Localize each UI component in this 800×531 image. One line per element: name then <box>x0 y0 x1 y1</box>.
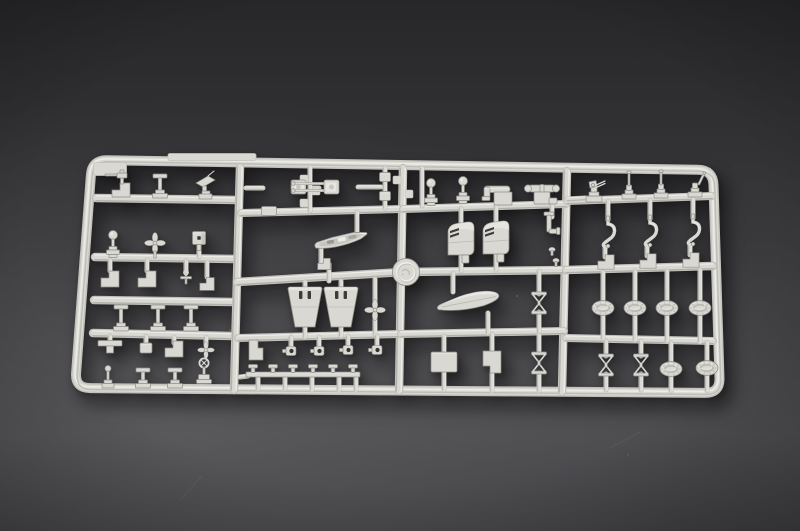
part-block <box>262 207 277 216</box>
part-block <box>380 192 391 201</box>
sprue-scene <box>0 0 800 531</box>
part-block <box>380 173 391 182</box>
model-kit-sprue-photo <box>0 0 800 531</box>
part-oval_raft <box>660 362 682 377</box>
part-oval_raft <box>689 301 711 316</box>
part-block <box>140 343 152 353</box>
part-oval_raft <box>656 301 678 316</box>
part-tab <box>168 154 256 161</box>
part-oval_raft <box>592 301 614 316</box>
part-block <box>431 352 457 372</box>
part-oval_raft <box>696 361 718 376</box>
part-logo_disc <box>393 259 420 286</box>
part-oval_raft <box>624 301 646 316</box>
